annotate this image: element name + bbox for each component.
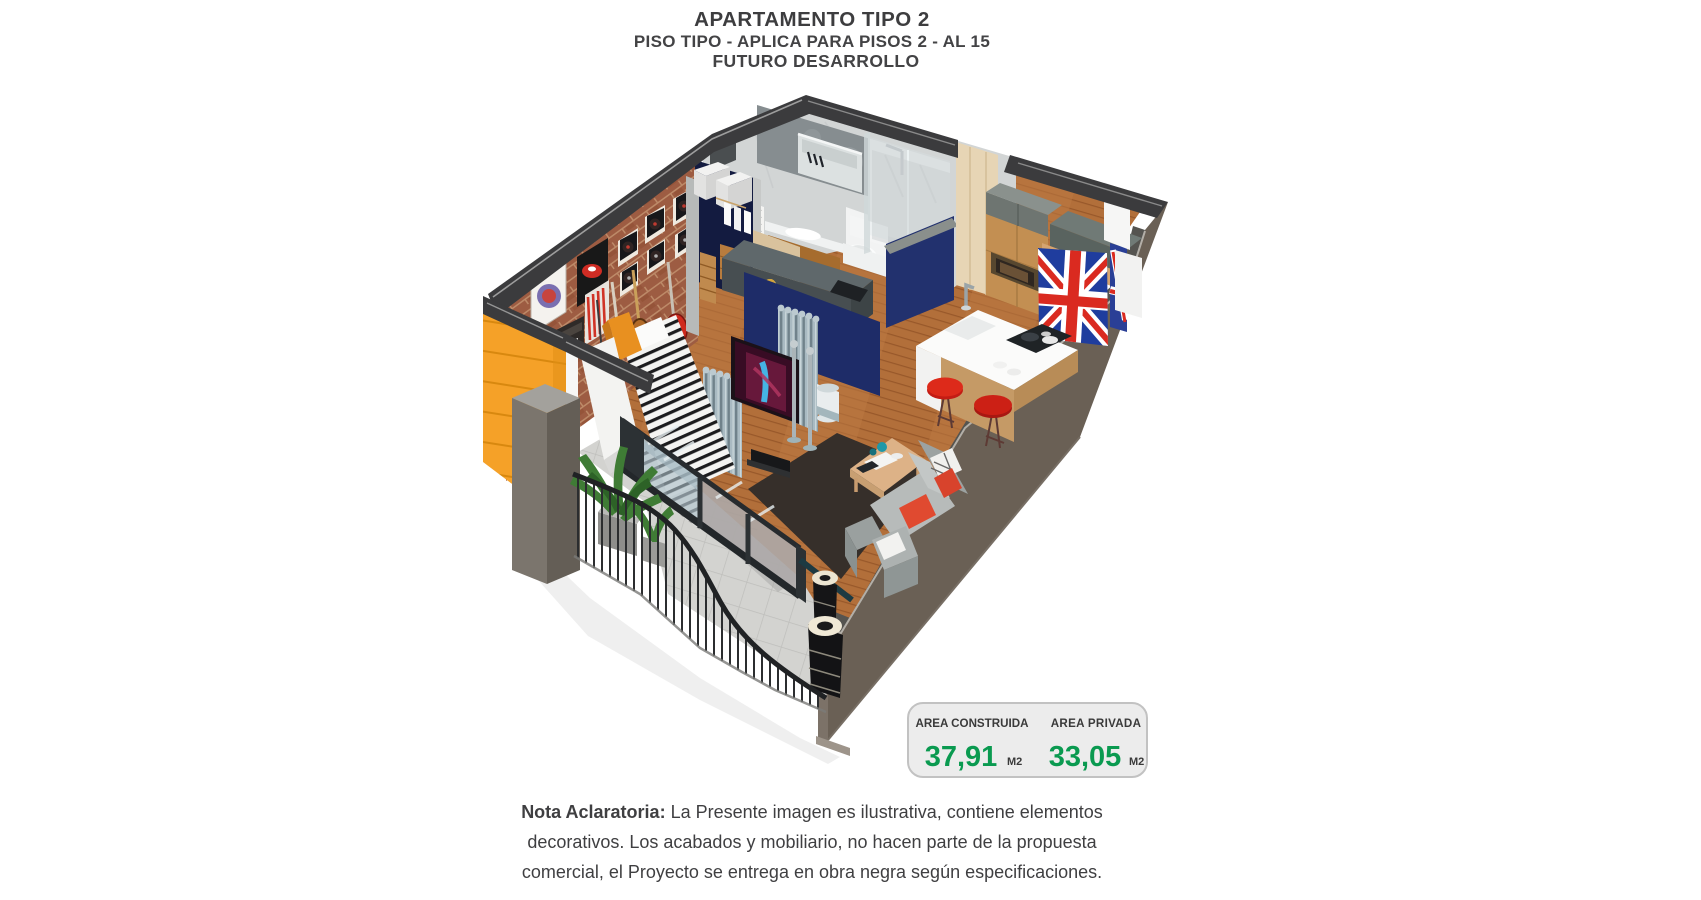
svg-text:M2: M2 [1129,756,1144,768]
svg-text:37,91: 37,91 [925,741,998,773]
svg-text:33,05: 33,05 [1049,741,1122,773]
svg-text:AREA CONSTRUIDA: AREA CONSTRUIDA [916,717,1030,730]
svg-text:APARTAMENTO TIPO 2: APARTAMENTO TIPO 2 [694,8,930,31]
svg-text:PISO TIPO - APLICA PARA PISOS: PISO TIPO - APLICA PARA PISOS 2 - AL 15 [634,32,990,51]
svg-text:decorativos. Los acabados y mo: decorativos. Los acabados y mobiliario, … [527,832,1097,852]
svg-text:AREA PRIVADA: AREA PRIVADA [1051,717,1142,730]
svg-text:Nota Aclaratoria: La Presente: Nota Aclaratoria: La Presente imagen es … [521,802,1103,822]
svg-text:FUTURO DESARROLLO: FUTURO DESARROLLO [712,51,919,71]
svg-text:comercial, el Proyecto se ent: comercial, el Proyecto se entrega en obr… [522,862,1102,882]
svg-text:M2: M2 [1007,756,1022,768]
